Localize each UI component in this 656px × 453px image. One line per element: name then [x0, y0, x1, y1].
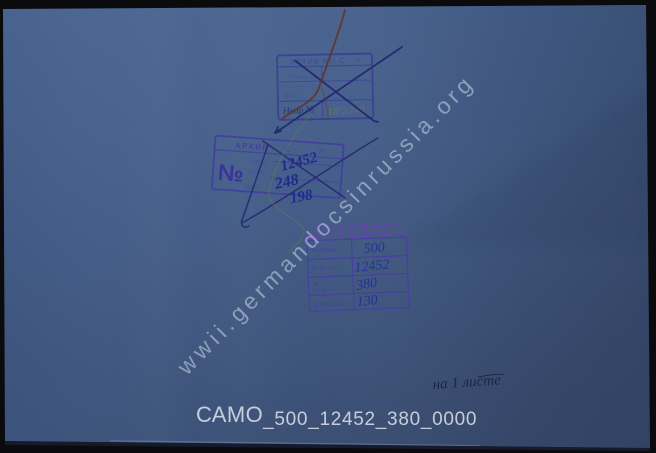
svg-text:№№ оп. дел. вкл.: №№ оп. дел. вкл.	[280, 83, 314, 89]
svg-text:АРХИВ МО С: АРХИВ МО С	[290, 56, 346, 66]
svg-text:дела ––: дела ––	[313, 287, 334, 294]
svg-text:№ оп. ––––: № оп. ––––	[312, 265, 342, 272]
svg-text:ДЕЛ: ДЕЛ	[245, 185, 257, 192]
svg-text:Р: Р	[356, 56, 361, 65]
svg-text:130: 130	[356, 293, 378, 310]
svg-text:500: 500	[363, 241, 385, 257]
svg-text:Д 61: Д 61	[284, 92, 298, 99]
svg-text:№: №	[217, 159, 244, 187]
